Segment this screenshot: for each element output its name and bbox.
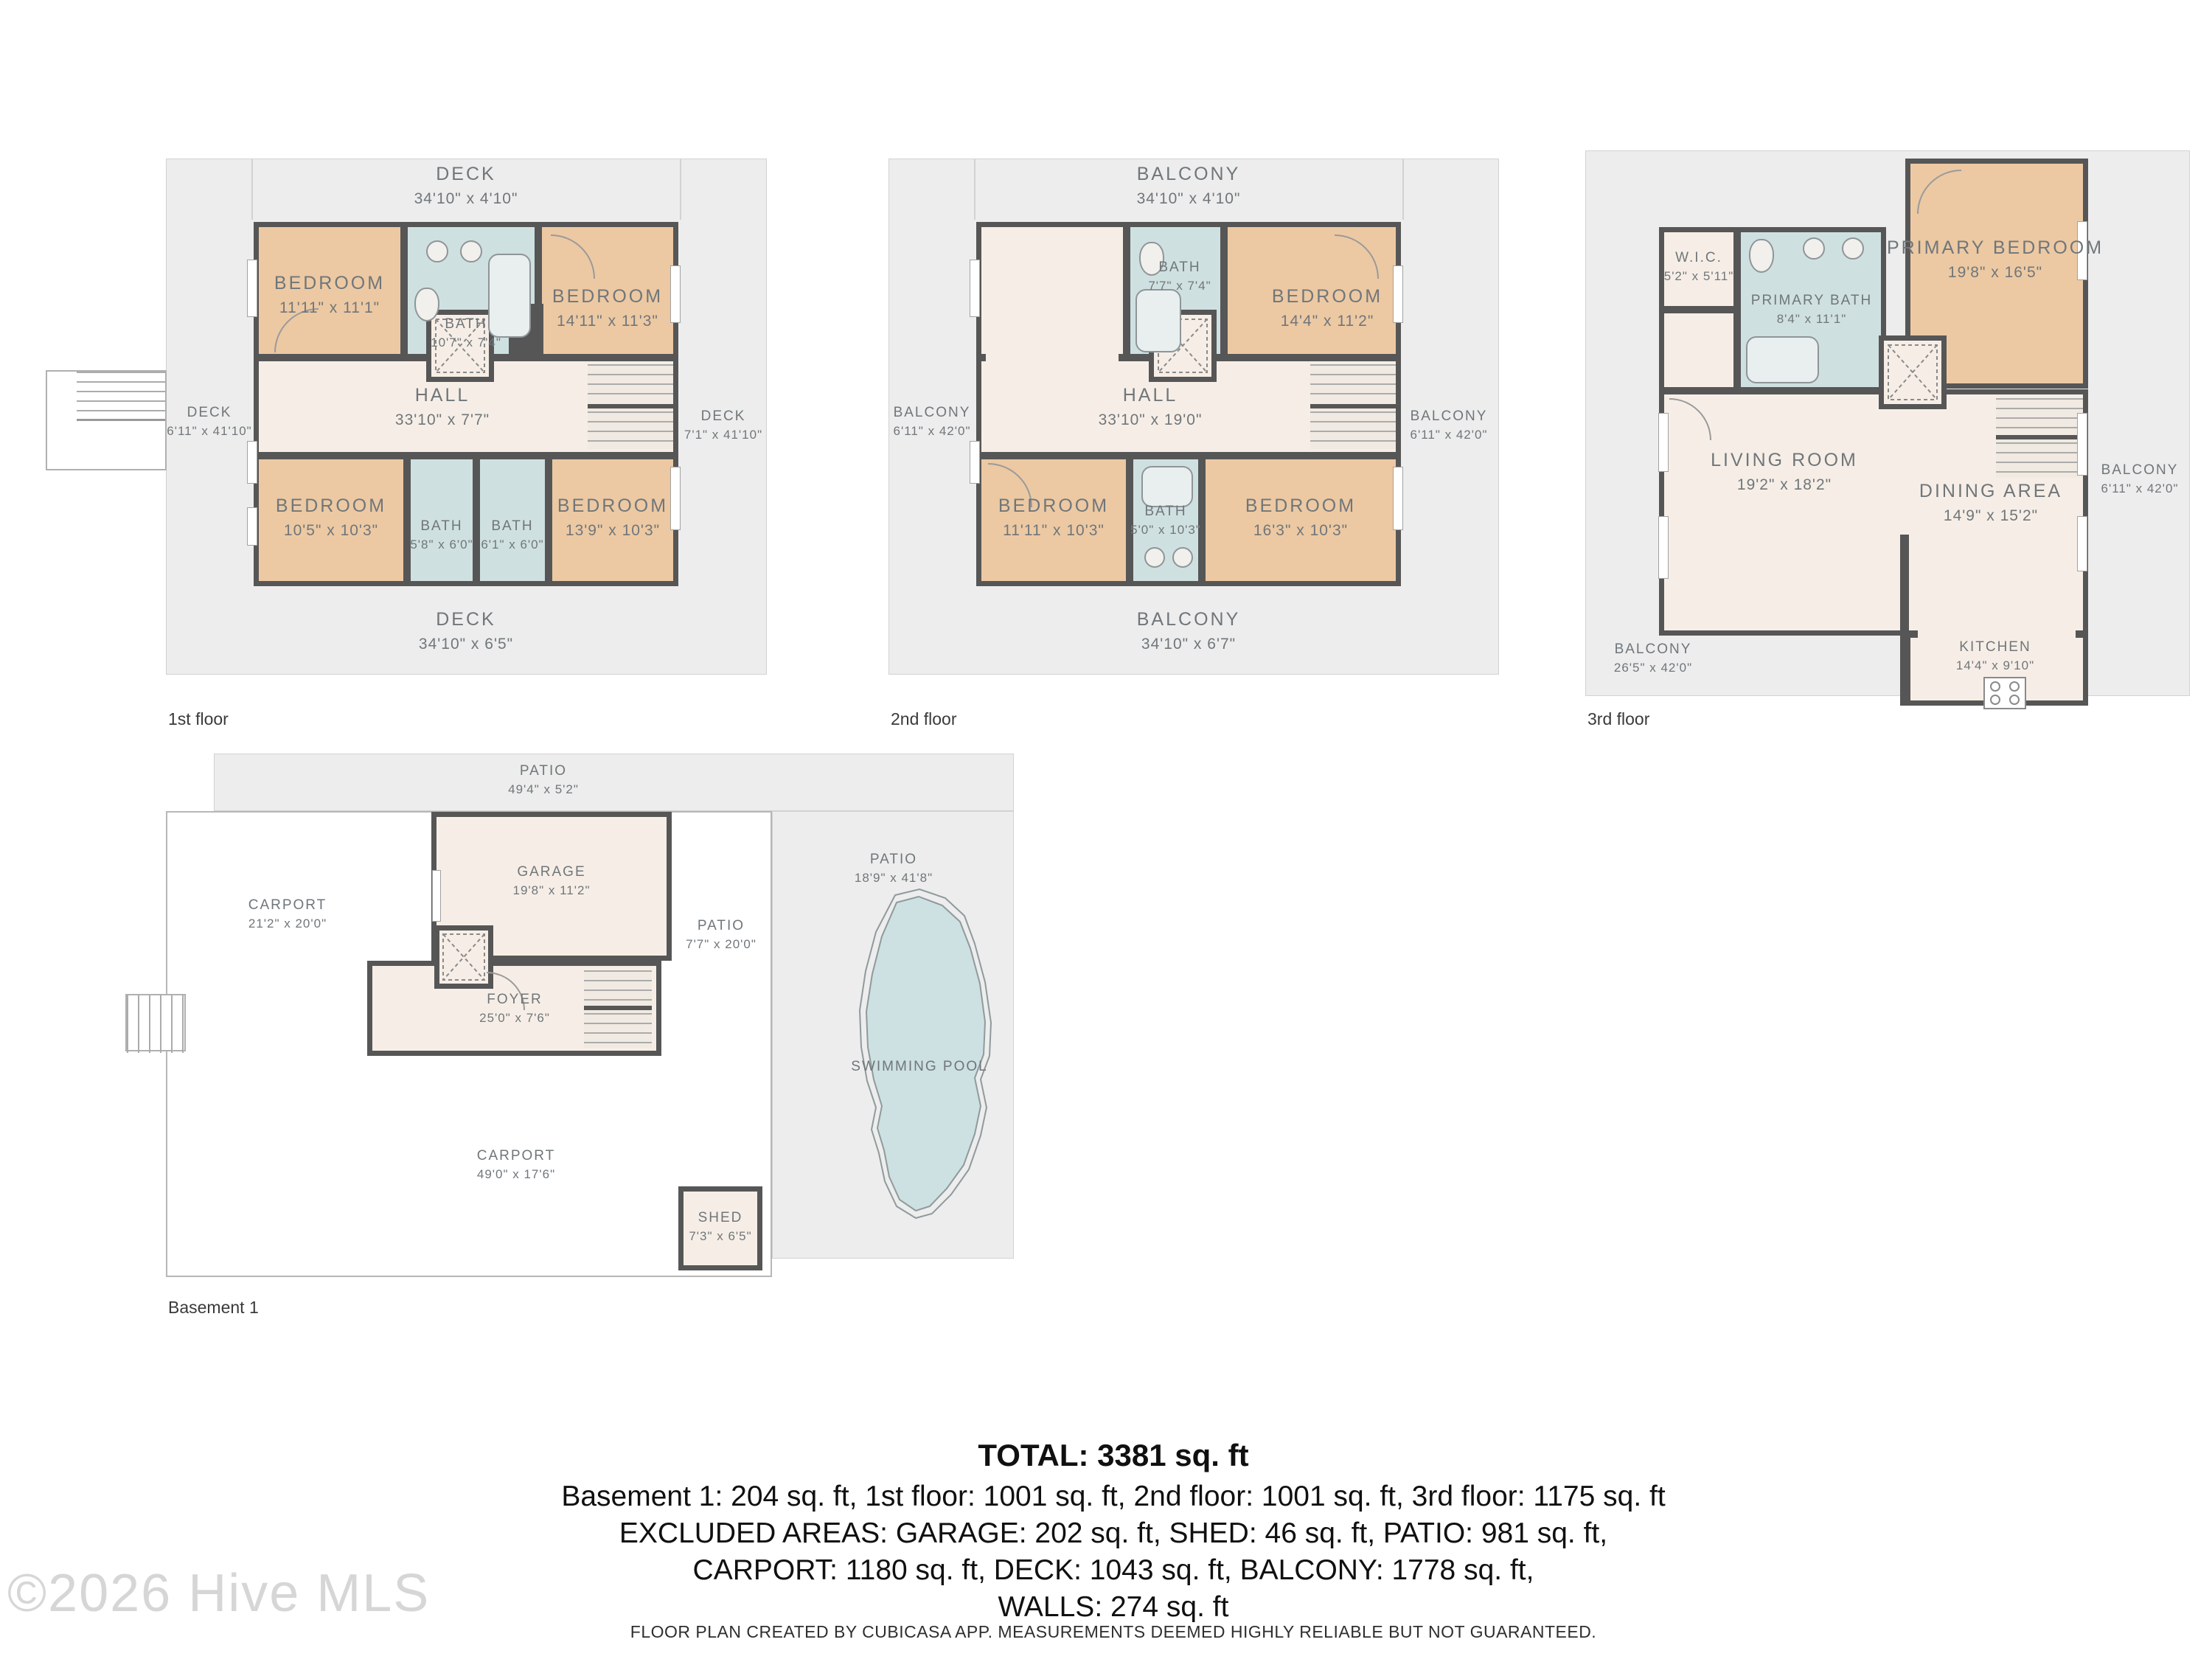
- summary-line-carport-deck: CARPORT: 1180 sq. ft, DECK: 1043 sq. ft,…: [369, 1554, 1858, 1587]
- total-area: TOTAL: 3381 sq. ft: [369, 1438, 1858, 1473]
- window: [432, 870, 441, 922]
- patio-right-label: PATIO7'7" x 20'0": [686, 918, 757, 952]
- wic-label: W.I.C.5'2" x 5'11": [1664, 250, 1734, 284]
- stairs-first-floor: [588, 364, 673, 449]
- balcony-divider-line: [974, 159, 975, 220]
- stairs-second-floor: [1310, 364, 1396, 449]
- toilet-icon: [1749, 239, 1774, 273]
- summary-line-excluded: EXCLUDED AREAS: GARAGE: 202 sq. ft, SHED…: [369, 1517, 1858, 1550]
- deck-right-label: DECK7'1" x 41'10": [684, 408, 762, 442]
- bath-bl-label: BATH5'8" x 6'0": [410, 518, 473, 552]
- bedroom-tl-label: BEDROOM11'11" x 11'1": [274, 273, 385, 317]
- foyer-label: FOYER25'0" x 7'6": [479, 992, 550, 1026]
- sink-icon: [460, 240, 482, 262]
- patio-top-label: PATIO49'4" x 5'2": [508, 763, 579, 797]
- deck-divider-line: [251, 159, 253, 220]
- bedroom-tr-second-label: BEDROOM14'4" x 11'2": [1272, 286, 1382, 330]
- hall-second-label: HALL33'10" x 19'0": [1099, 385, 1203, 429]
- stove-icon: [1983, 677, 2026, 709]
- sink-icon: [426, 240, 448, 262]
- bedroom-bl-label: BEDROOM10'5" x 10'3": [276, 495, 386, 540]
- bathtub-icon: [1141, 466, 1193, 507]
- exterior-stairs-basement: [125, 994, 186, 1051]
- balcony-divider-line: [1402, 159, 1404, 220]
- patio-pool-label: PATIO18'9" x 41'8": [855, 852, 933, 886]
- window: [970, 260, 980, 317]
- second-floor-tag: 2nd floor: [891, 709, 957, 729]
- balcony-left-label: BALCONY6'11" x 42'0": [894, 405, 971, 439]
- dining-area-label: DINING AREA14'9" x 15'2": [1919, 481, 2062, 525]
- carport-upper-label: CARPORT21'2" x 20'0": [248, 897, 327, 931]
- primary-bedroom-label: PRIMARY BEDROOM19'8" x 16'5": [1887, 237, 2104, 282]
- basement-patio-top: [214, 754, 1014, 811]
- deck-left-label: DECK6'11" x 41'10": [167, 405, 251, 439]
- window: [1393, 265, 1403, 323]
- sink-icon: [1172, 547, 1193, 568]
- window: [1658, 413, 1669, 472]
- window: [2077, 516, 2087, 571]
- bathtub-icon: [1135, 289, 1181, 352]
- elevator-shaft-third: [1884, 341, 1941, 404]
- third-floor-tag: 3rd floor: [1587, 709, 1649, 729]
- mls-watermark: ©2026 Hive MLS: [7, 1563, 430, 1624]
- shed-label: SHED7'3" x 6'5": [689, 1210, 751, 1244]
- window: [970, 441, 980, 484]
- bathtub-icon: [1746, 336, 1819, 383]
- sink-icon: [1842, 237, 1864, 260]
- window: [247, 507, 257, 546]
- stairs-basement: [584, 970, 652, 1048]
- garage-label: GARAGE19'8" x 11'2": [513, 864, 591, 898]
- bath-top-label: BATH10'7" x 7'4": [431, 316, 501, 350]
- bath-bottom-second-label: BATH5'0" x 10'3": [1130, 504, 1201, 538]
- hall-label: HALL33'10" x 7'7": [395, 385, 490, 429]
- first-floor-tag: 1st floor: [168, 709, 229, 729]
- balcony-right-label: BALCONY6'11" x 42'0": [1411, 408, 1488, 442]
- balcony-top-label: BALCONY34'10" x 4'10": [1137, 164, 1241, 208]
- kitchen-label: KITCHEN14'4" x 9'10": [1956, 639, 2034, 673]
- window: [2077, 413, 2087, 476]
- basement-floor-tag: Basement 1: [168, 1298, 259, 1318]
- sink-icon: [1144, 547, 1165, 568]
- closet-third: [1664, 313, 1733, 387]
- exterior-stairs-first-floor: [46, 370, 167, 470]
- elevator-shaft-basement: [439, 931, 488, 984]
- open-plan-patch: [986, 348, 1119, 369]
- carport-lower-label: CARPORT49'0" x 17'6": [477, 1148, 556, 1182]
- deck-divider-line: [680, 159, 681, 220]
- window: [670, 467, 681, 530]
- swimming-pool-label: SWIMMING POOL: [851, 1059, 987, 1075]
- deck-bottom-label: DECK34'10" x 6'5": [419, 609, 513, 653]
- window: [1393, 467, 1403, 530]
- balcony-right-third-label: BALCONY6'11" x 42'0": [2101, 462, 2179, 496]
- bedroom-tr-label: BEDROOM14'11" x 11'3": [552, 286, 663, 330]
- bath-top-second-label: BATH7'7" x 7'4": [1148, 260, 1211, 293]
- bath-br-label: BATH6'1" x 6'0": [481, 518, 543, 552]
- deck-top-label: DECK34'10" x 4'10": [414, 164, 518, 208]
- hall-upper-second: [981, 227, 1123, 354]
- summary-line-walls: WALLS: 274 sq. ft: [369, 1591, 1858, 1624]
- window: [247, 260, 257, 317]
- swimming-pool-shape: [849, 886, 994, 1222]
- bedroom-bl-second-label: BEDROOM11'11" x 10'3": [998, 495, 1109, 540]
- floor-plan-sheet: { "watermark": "©2026 Hive MLS", "footer…: [0, 0, 2212, 1659]
- bedroom-br-label: BEDROOM13'9" x 10'3": [557, 495, 668, 540]
- balcony-bottom-label: BALCONY34'10" x 6'7": [1137, 609, 1240, 653]
- bedroom-br-second-label: BEDROOM16'3" x 10'3": [1245, 495, 1356, 540]
- summary-line-floors: Basement 1: 204 sq. ft, 1st floor: 1001 …: [369, 1481, 1858, 1513]
- disclaimer-text: FLOOR PLAN CREATED BY CUBICASA APP. MEAS…: [369, 1622, 1858, 1642]
- wall-block: [1900, 535, 1909, 706]
- window: [1658, 516, 1669, 579]
- balcony-bottom-third-label: BALCONY26'5" x 42'0": [1614, 641, 1692, 675]
- stairs-third-floor: [1996, 398, 2083, 478]
- primary-bath-label: PRIMARY BATH8'4" x 11'1": [1751, 293, 1872, 327]
- window: [670, 265, 681, 323]
- window: [247, 441, 257, 484]
- area-summary: TOTAL: 3381 sq. ft Basement 1: 204 sq. f…: [369, 1438, 1858, 1624]
- living-room-label: LIVING ROOM19'2" x 18'2": [1711, 450, 1858, 494]
- sink-icon: [1803, 237, 1825, 260]
